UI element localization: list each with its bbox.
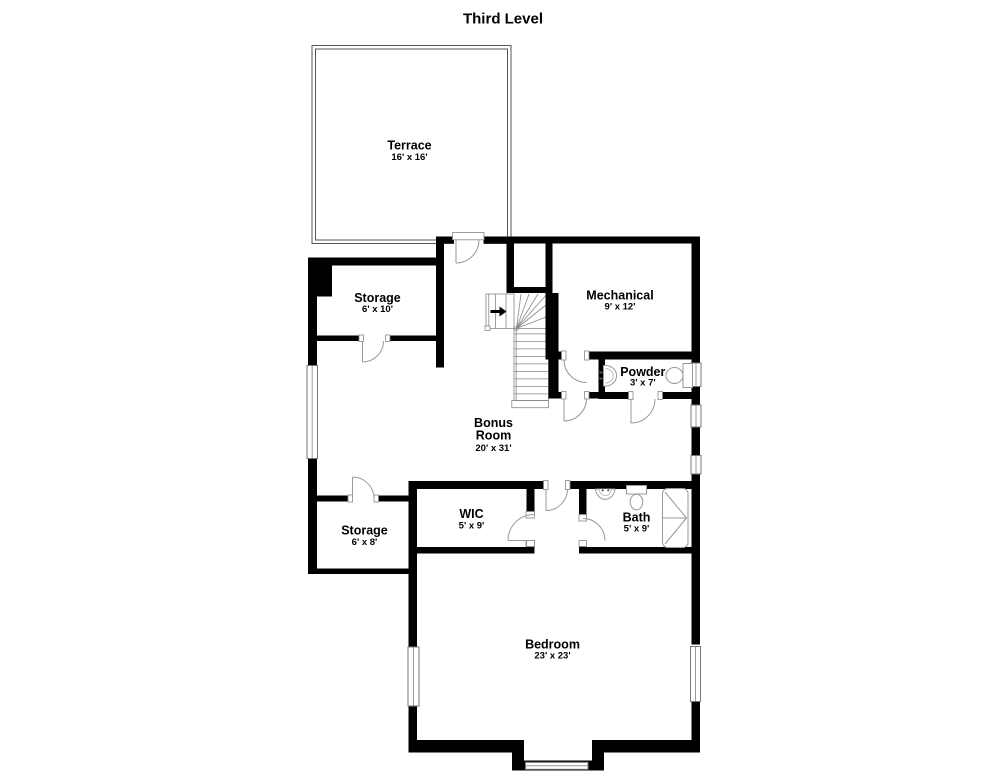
svg-text:Bedroom: Bedroom [525, 638, 580, 652]
svg-text:23' x 23': 23' x 23' [534, 651, 570, 662]
svg-text:6' x 8': 6' x 8' [352, 537, 378, 548]
svg-text:Terrace: Terrace [387, 139, 431, 153]
svg-text:WIC: WIC [459, 507, 483, 521]
svg-text:Storage: Storage [341, 524, 388, 538]
svg-text:Room: Room [476, 429, 511, 443]
svg-text:16' x 16': 16' x 16' [391, 152, 427, 163]
svg-text:9' x 12': 9' x 12' [605, 302, 636, 313]
svg-text:3' x 7': 3' x 7' [630, 378, 656, 389]
svg-text:Storage: Storage [354, 291, 401, 305]
svg-text:Third Level: Third Level [463, 11, 543, 28]
svg-text:5' x 9': 5' x 9' [624, 524, 650, 535]
svg-text:6' x 10': 6' x 10' [362, 304, 393, 315]
svg-text:5' x 9': 5' x 9' [459, 521, 485, 532]
svg-text:Mechanical: Mechanical [586, 289, 653, 303]
svg-text:Bath: Bath [623, 511, 651, 525]
svg-text:20' x 31': 20' x 31' [475, 443, 511, 454]
